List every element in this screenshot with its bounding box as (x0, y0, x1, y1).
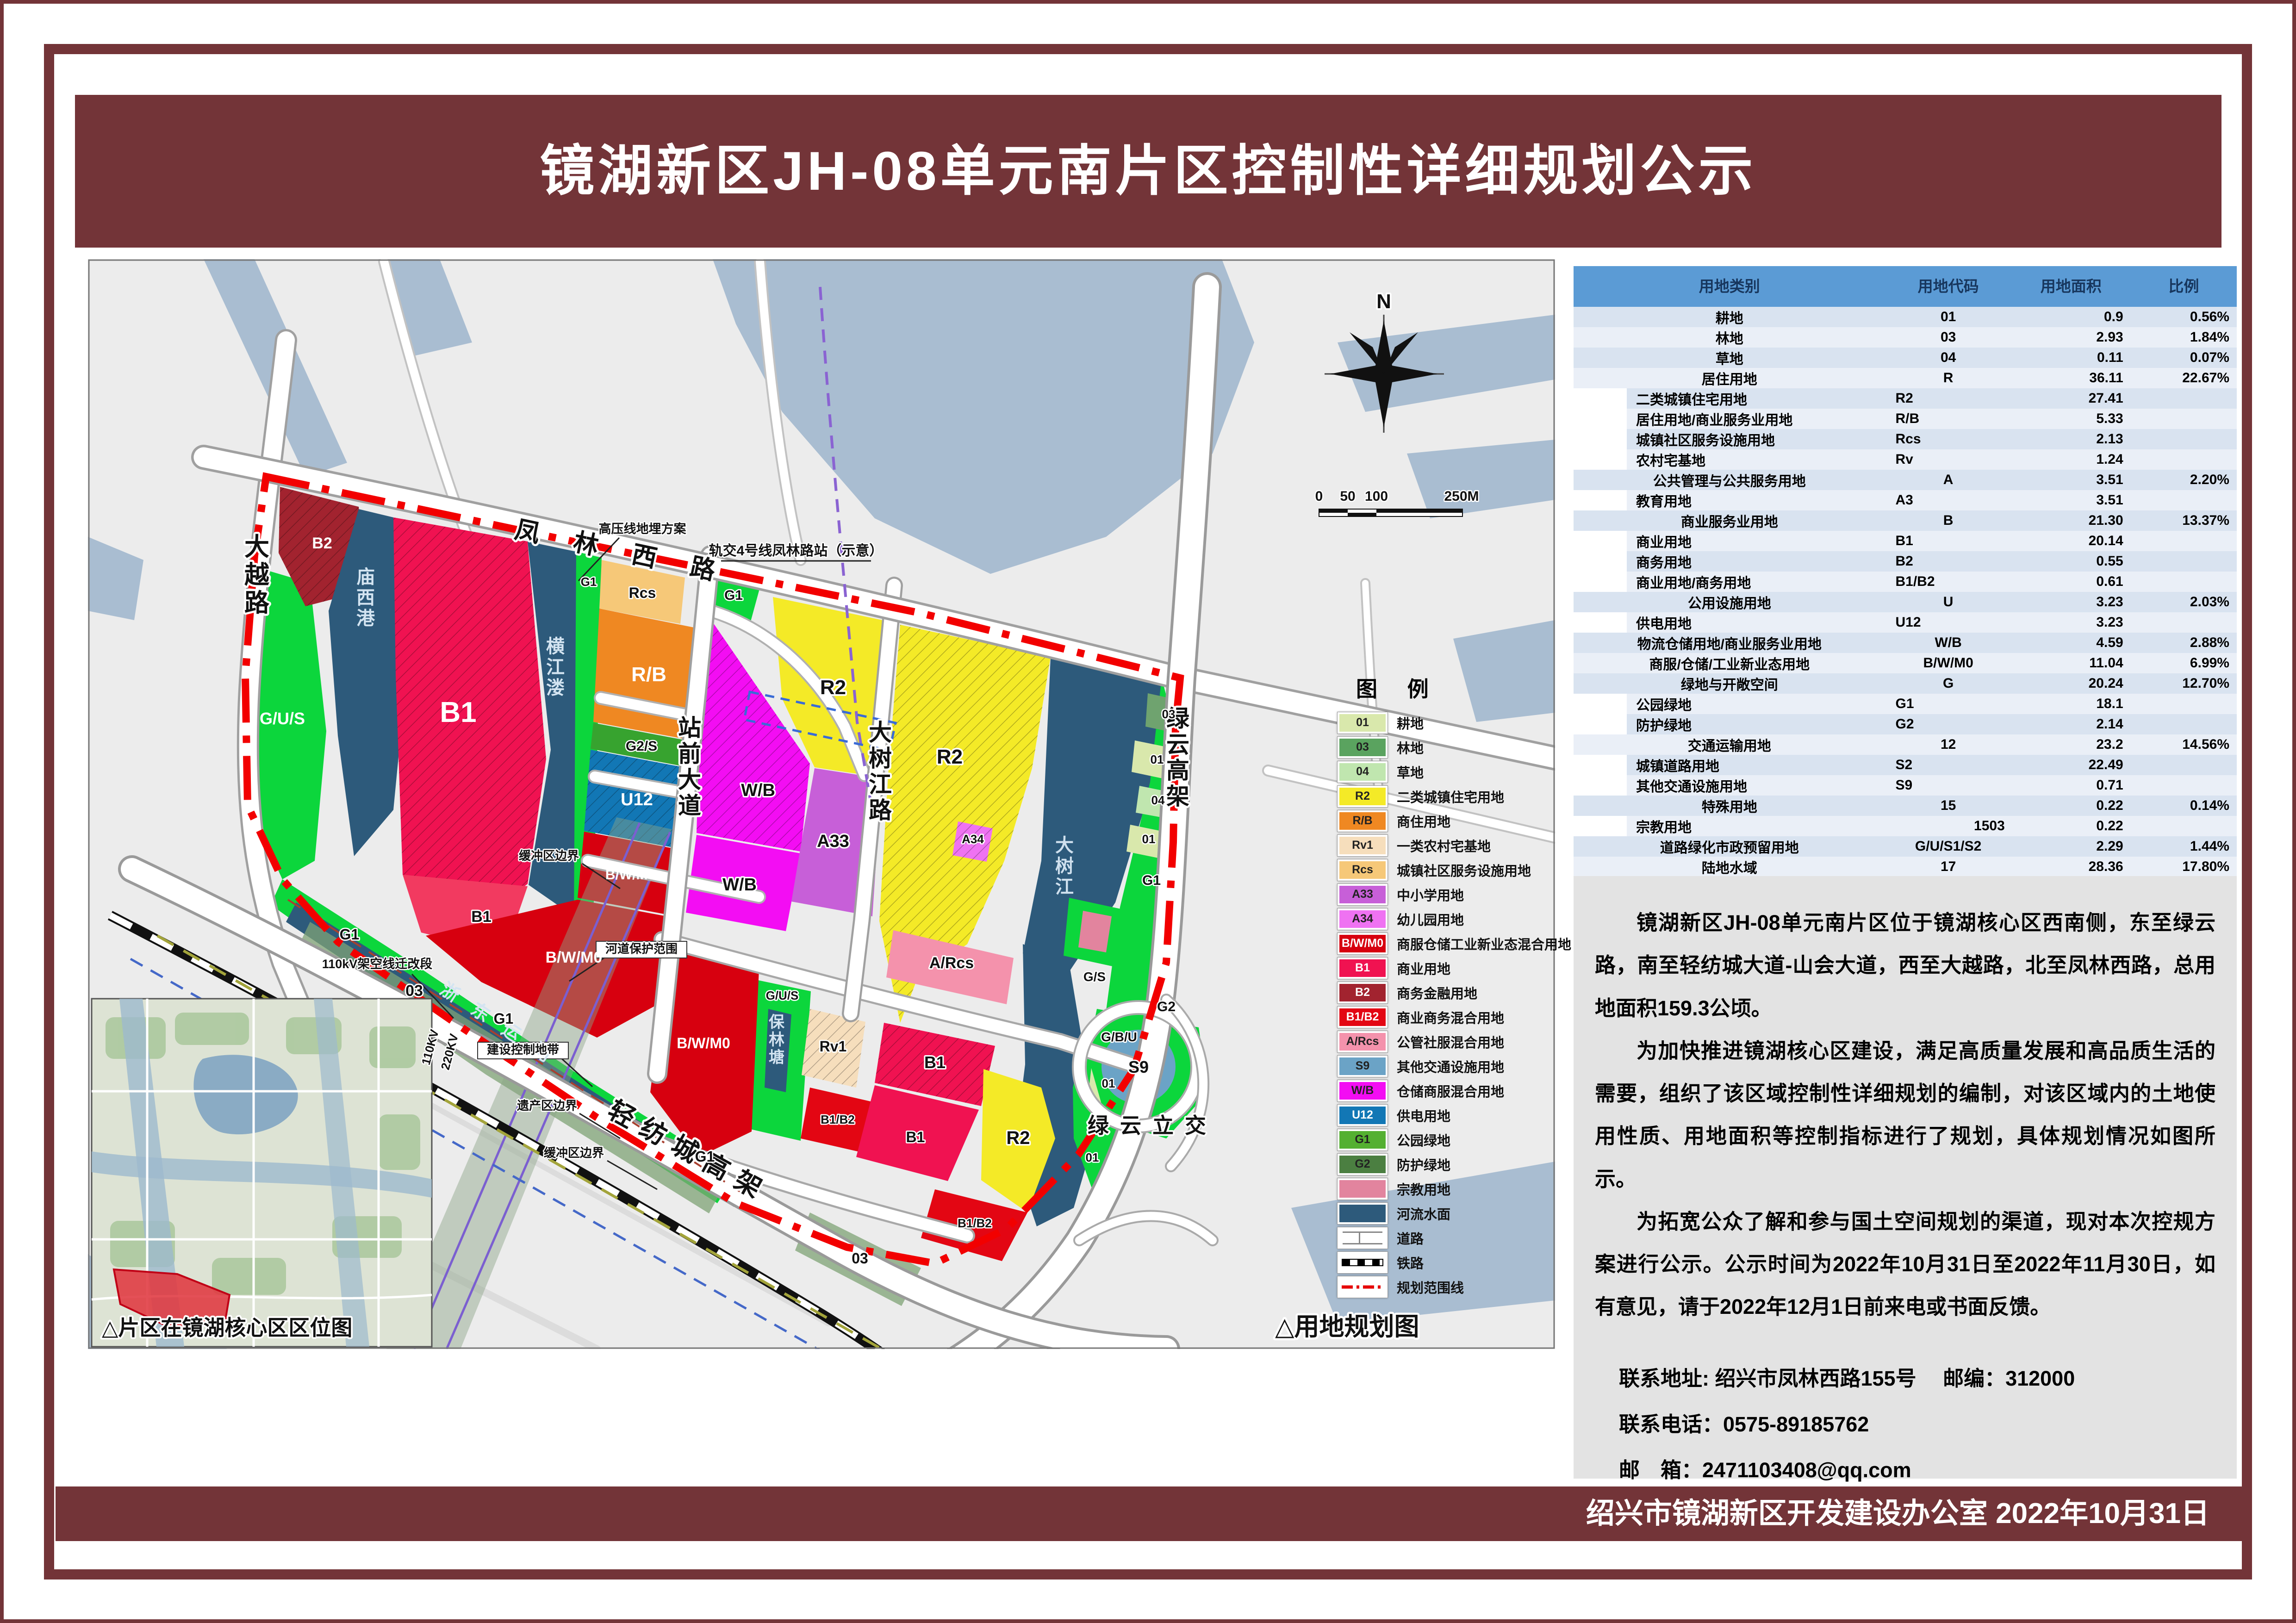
rail-icon (1338, 1252, 1388, 1273)
swatch-icon: B1 (1338, 958, 1388, 979)
table-row: 特殊用地150.220.14% (1574, 796, 2237, 816)
cell-name: 二类城镇住宅用地 (1574, 388, 1885, 409)
swatch-icon: A/Rcs (1338, 1031, 1388, 1052)
cell-name: 供电用地 (1574, 612, 1885, 633)
map-label: W/B (741, 781, 775, 800)
landuse-table: 用地类别 用地代码 用地面积 比例 耕地010.90.56%林地032.931.… (1574, 266, 2237, 897)
table-row: 林地032.931.84% (1574, 327, 2237, 348)
cell-code: 17 (1885, 857, 2011, 877)
map-label: △用地规划图 (1275, 1313, 1419, 1341)
cell-area: 0.71 (2011, 775, 2131, 796)
cell-code: R/B (1885, 409, 2011, 429)
legend-label: 幼儿园用地 (1397, 909, 1464, 929)
landuse-map: 大越路凤 林 西 路站前大道大树江路绿云高架轻纺城高架绿云立交庙西港横江溇保林塘… (88, 259, 1555, 1349)
map-label: 大树江路 (869, 720, 892, 823)
table-row: 商业用地B120.14 (1574, 531, 2237, 551)
legend-items: 01耕地03林地04草地R2二类城镇住宅用地R/B商住用地Rv1一类农村宅基地R… (1338, 710, 1560, 1299)
map-label: U12 (621, 790, 653, 809)
road-icon (1338, 1227, 1388, 1249)
swatch-icon: 03 (1338, 737, 1388, 758)
table-row: 宗教用地15030.22 (1574, 816, 2237, 836)
map-label: Rcs (629, 585, 656, 601)
legend-item: G2防护绿地 (1338, 1152, 1560, 1176)
swatch-icon: R2 (1338, 786, 1388, 807)
cell-area: 20.14 (2011, 531, 2131, 551)
cell-name: 公共管理与公共服务用地 (1574, 470, 1885, 490)
cell-pct: 0.14% (2131, 796, 2237, 816)
table-row: 城镇社区服务设施用地Rcs2.13 (1574, 429, 2237, 449)
cell-pct: 22.67% (2131, 368, 2237, 388)
cell-area: 2.29 (2011, 836, 2131, 857)
swatch-icon: Rcs (1338, 859, 1388, 881)
map-label: R/B (631, 663, 666, 686)
map-label: N (1376, 290, 1391, 313)
cell-area: 27.41 (2011, 388, 2131, 409)
legend-item: 道路 (1338, 1225, 1560, 1250)
legend-label: 仓储商服混合用地 (1397, 1081, 1504, 1101)
legend-item: 04草地 (1338, 759, 1560, 784)
legend-code: B/W/M0 (1342, 937, 1383, 950)
map-label: 保林塘 (769, 1014, 785, 1066)
legend-code: A33 (1352, 888, 1373, 901)
cell-area: 36.11 (2011, 368, 2131, 388)
swatch-icon: G1 (1338, 1129, 1388, 1150)
legend-label: 其他交通设施用地 (1397, 1057, 1504, 1076)
legend-item: B2商务金融用地 (1338, 980, 1560, 1005)
legend-item: B1商业用地 (1338, 956, 1560, 980)
cell-pct (2131, 490, 2237, 510)
map-label: R2 (937, 746, 963, 768)
map-label: 50 (1340, 489, 1355, 504)
contact-block: 联系地址: 绍兴市凤林西路155号 邮编：312000 联系电话：0575-89… (1595, 1356, 2215, 1493)
map-label: 轨交4号线凤林路站（示意） (709, 543, 884, 559)
swatch-icon: 04 (1338, 761, 1388, 783)
legend-label: 道路 (1397, 1228, 1424, 1248)
map-label: 110kV架空线迁改段 (322, 957, 433, 971)
cell-pct (2131, 449, 2237, 470)
legend-item: A33中小学用地 (1338, 882, 1560, 907)
cell-area: 0.11 (2011, 348, 2131, 368)
cell-name: 教育用地 (1574, 490, 1885, 510)
legend-label: 供电用地 (1397, 1106, 1450, 1125)
table-row: 其他交通设施用地S90.71 (1574, 775, 2237, 796)
map-label: G1 (340, 926, 360, 943)
table-row: 商业服务业用地B21.3013.37% (1574, 510, 2237, 531)
table-row: 交通运输用地1223.214.56% (1574, 734, 2237, 755)
cell-name: 农村宅基地 (1574, 449, 1885, 470)
header-landuse-category: 用地类别 (1574, 266, 1885, 307)
legend-label: 商业商务混合用地 (1397, 1007, 1504, 1027)
legend-label: 一类农村宅基地 (1397, 836, 1491, 855)
legend-item: 规划范围线 (1338, 1275, 1560, 1299)
locator-map (92, 999, 432, 1347)
cell-code: 03 (1885, 327, 2011, 348)
cell-pct: 2.03% (2131, 592, 2237, 612)
table-row: 居住用地/商业服务业用地R/B5.33 (1574, 409, 2237, 429)
legend-item: 01耕地 (1338, 710, 1560, 735)
plan-notice-poster: 镜湖新区JH-08单元南片区控制性详细规划公示 (0, 0, 2296, 1623)
map-label: B1 (471, 908, 491, 926)
legend-label: 宗教用地 (1397, 1179, 1450, 1199)
table-row: 公共管理与公共服务用地A3.512.20% (1574, 470, 2237, 490)
cell-code: G2 (1885, 714, 2011, 734)
header-landuse-ratio: 比例 (2131, 266, 2237, 307)
cell-name: 陆地水域 (1574, 857, 1885, 877)
legend-item: R2二类城镇住宅用地 (1338, 784, 1560, 808)
map-label: 绿云立交 (1088, 1113, 1217, 1138)
header-landuse-area: 用地面积 (2011, 266, 2131, 307)
cell-area: 3.51 (2011, 490, 2131, 510)
cell-pct: 13.37% (2131, 510, 2237, 531)
map-label: 03 (1162, 707, 1176, 721)
table-row: 耕地010.90.56% (1574, 307, 2237, 327)
map-label: Rv1 (820, 1038, 847, 1055)
map-label: 大越路 (244, 533, 270, 617)
cell-pct (2131, 755, 2237, 775)
map-label: 横江溇 (546, 636, 565, 698)
cell-name: 城镇社区服务设施用地 (1574, 429, 1885, 449)
cell-name: 绿地与开敞空间 (1574, 673, 1885, 694)
cell-name: 特殊用地 (1574, 796, 1885, 816)
contact-email: 邮 箱：2471103408@qq.com (1619, 1447, 2215, 1493)
legend-label: 中小学用地 (1397, 885, 1464, 904)
cell-area: 0.22 (2011, 796, 2131, 816)
cell-name: 商务用地 (1574, 551, 1885, 572)
legend-item: Rcs城镇社区服务设施用地 (1338, 858, 1560, 882)
cell-name: 商服/仓储/工业新业态用地 (1574, 653, 1885, 673)
cell-name: 居住用地 (1574, 368, 1885, 388)
table-row: 商服/仓储/工业新业态用地B/W/M011.046.99% (1574, 653, 2237, 673)
cell-code: B/W/M0 (1885, 653, 2011, 673)
legend-code: B2 (1355, 986, 1370, 999)
cell-pct (2131, 531, 2237, 551)
map-label: G2/S (626, 739, 657, 754)
cell-code: S2 (1885, 755, 2011, 775)
cell-name: 商业用地 (1574, 531, 1885, 551)
cell-code: G (1885, 673, 2011, 694)
cell-name: 草地 (1574, 348, 1885, 368)
cell-code: Rcs (1885, 429, 2011, 449)
map-label: B/W/M0 (677, 1035, 730, 1051)
map-label: 缓冲区边界 (519, 849, 579, 863)
table-row: 商务用地B20.55 (1574, 551, 2237, 572)
legend-code: Rv1 (1352, 839, 1373, 852)
cell-code: Rv (1885, 449, 2011, 470)
cell-pct: 1.84% (2131, 327, 2237, 348)
cell-pct: 12.70% (2131, 673, 2237, 694)
cell-name: 防护绿地 (1574, 714, 1885, 734)
cell-area: 4.59 (2011, 633, 2131, 653)
map-label: 01 (1151, 752, 1164, 766)
legend-item: W/B仓储商服混合用地 (1338, 1078, 1560, 1103)
cell-area: 0.22 (2011, 816, 2131, 836)
map-label: S9 (1128, 1057, 1149, 1076)
cell-area: 3.23 (2011, 612, 2131, 633)
legend-item: G1公园绿地 (1338, 1127, 1560, 1152)
cell-name: 公园绿地 (1574, 694, 1885, 714)
swatch-icon (1338, 1178, 1388, 1200)
swatch-icon: B1/B2 (1338, 1007, 1388, 1028)
cell-code: R (1885, 368, 2011, 388)
legend-label: 商业用地 (1397, 958, 1450, 978)
cell-area: 18.1 (2011, 694, 2131, 714)
table-row: 公园绿地G118.1 (1574, 694, 2237, 714)
legend-label: 规划范围线 (1397, 1277, 1464, 1297)
legend-label: 商服仓储工业新业态混合用地 (1397, 934, 1571, 953)
cell-code: B1/B2 (1885, 572, 2011, 592)
swatch-icon: S9 (1338, 1056, 1388, 1077)
cell-name: 林地 (1574, 327, 1885, 348)
cell-area: 0.55 (2011, 551, 2131, 572)
map-label: G2 (1157, 999, 1176, 1014)
cell-area: 0.61 (2011, 572, 2131, 592)
table-row: 农村宅基地Rv1.24 (1574, 449, 2237, 470)
cell-pct: 0.07% (2131, 348, 2237, 368)
cell-code: B2 (1885, 551, 2011, 572)
legend-code: U12 (1352, 1108, 1373, 1122)
map-label: B2 (312, 535, 332, 552)
legend-label: 铁路 (1397, 1253, 1424, 1272)
map-label: 河道保护范围 (605, 942, 678, 956)
map-label: 遗产区边界 (517, 1099, 577, 1113)
cell-name: 商业服务业用地 (1574, 510, 1885, 531)
swatch-icon: B2 (1338, 982, 1388, 1003)
cell-area: 20.24 (2011, 673, 2131, 694)
cell-area: 1.24 (2011, 449, 2131, 470)
map-label: G1 (1142, 873, 1161, 888)
cell-pct: 2.88% (2131, 633, 2237, 653)
table-row: 教育用地A33.51 (1574, 490, 2237, 510)
page-title: 镜湖新区JH-08单元南片区控制性详细规划公示 (75, 95, 2221, 248)
legend-item: A/Rcs公管社服混合用地 (1338, 1029, 1560, 1054)
swatch-icon: G2 (1338, 1154, 1388, 1175)
map-label: A34 (962, 832, 984, 846)
cell-name: 道路绿化市政预留用地 (1574, 836, 1885, 857)
table-row: 城镇道路用地S222.49 (1574, 755, 2237, 775)
cell-name: 耕地 (1574, 307, 1885, 327)
legend-code: G1 (1355, 1133, 1370, 1146)
cell-pct (2131, 388, 2237, 409)
legend-item: 河流水面 (1338, 1201, 1560, 1225)
cell-code: 15 (1885, 796, 2011, 816)
notice-paragraph: 为拓宽公众了解和参与国土空间规划的渠道，现对本次控规方案进行公示。公示时间为20… (1595, 1200, 2215, 1329)
legend-item: B1/B2商业商务混合用地 (1338, 1005, 1560, 1029)
cell-code: 04 (1885, 348, 2011, 368)
cell-name: 居住用地/商业服务业用地 (1574, 409, 1885, 429)
map-label: 大树江 (1055, 835, 1074, 897)
cell-code: A (1885, 470, 2011, 490)
cell-pct (2131, 714, 2237, 734)
map-label: 01 (1086, 1150, 1099, 1164)
legend-item: A34幼儿园用地 (1338, 907, 1560, 931)
map-label: G/U/S (260, 709, 305, 728)
legend-label: 城镇社区服务设施用地 (1397, 860, 1531, 880)
legend-code: Rcs (1352, 863, 1373, 877)
legend-label: 草地 (1397, 762, 1424, 782)
legend-item: U12供电用地 (1338, 1103, 1560, 1127)
notice-text-panel: 镜湖新区JH-08单元南片区位于镜湖核心区西南侧，东至绿云路，南至轻纺城大道-山… (1574, 876, 2237, 1479)
cell-pct: 1.44% (2131, 836, 2237, 857)
swatch-icon: B/W/M0 (1338, 933, 1388, 954)
table-row: 商业用地/商务用地B1/B20.61 (1574, 572, 2237, 592)
legend-code: B1/B2 (1346, 1010, 1379, 1024)
legend-label: 耕地 (1397, 713, 1424, 733)
cell-pct (2131, 612, 2237, 633)
map-label: G1 (581, 575, 597, 589)
cell-pct: 0.56% (2131, 307, 2237, 327)
cell-pct (2131, 572, 2237, 592)
cell-name: 城镇道路用地 (1574, 755, 1885, 775)
cell-name: 其他交通设施用地 (1574, 775, 1885, 796)
map-label: R2 (1006, 1128, 1030, 1148)
cell-code: B (1885, 510, 2011, 531)
table-row: 防护绿地G22.14 (1574, 714, 2237, 734)
map-label: G1 (724, 588, 743, 603)
table-row: 二类城镇住宅用地R227.41 (1574, 388, 2237, 409)
swatch-icon: R/B (1338, 810, 1388, 832)
legend-label: 二类城镇住宅用地 (1397, 787, 1504, 806)
swatch-icon: Rv1 (1338, 835, 1388, 856)
legend-code: A/Rcs (1346, 1035, 1379, 1048)
cell-code: 01 (1885, 307, 2011, 327)
legend-code: B1 (1355, 961, 1370, 975)
legend-code: A34 (1352, 912, 1373, 926)
map-label: G/B/U (1101, 1030, 1137, 1044)
swatch-icon: W/B (1338, 1080, 1388, 1101)
cell-code: W/B (1885, 633, 2011, 653)
cell-name: 物流仓储用地/商业服务业用地 (1574, 633, 1885, 653)
legend-label: 商住用地 (1397, 811, 1450, 831)
footer-bar: 绍兴市镜湖新区开发建设办公室 2022年10月31日 (56, 1486, 2242, 1541)
legend-code: G2 (1355, 1157, 1370, 1171)
cell-name: 宗教用地 (1574, 816, 1885, 836)
header-landuse-code: 用地代码 (1885, 266, 2011, 307)
map-label: 缓冲区边界 (544, 1146, 604, 1160)
legend-item: 宗教用地 (1338, 1176, 1560, 1201)
cell-pct (2131, 816, 2237, 836)
map-label: 250M (1444, 489, 1479, 504)
legend-label: 河流水面 (1397, 1204, 1450, 1223)
map-label: A33 (817, 832, 849, 851)
table-row: 绿地与开敞空间G20.2412.70% (1574, 673, 2237, 694)
cell-pct (2131, 551, 2237, 572)
legend-code: R2 (1355, 790, 1370, 803)
legend-label: 商务金融用地 (1397, 983, 1477, 1002)
table-row: 公用设施用地U3.232.03% (1574, 592, 2237, 612)
swatch-icon: A33 (1338, 884, 1388, 905)
map-label: G1 (695, 1148, 715, 1165)
cell-pct (2131, 775, 2237, 796)
cell-area: 21.30 (2011, 510, 2131, 531)
map-label: G/U/S (766, 989, 799, 1002)
swatch-icon: 01 (1338, 712, 1388, 734)
cell-code: R2 (1885, 388, 2011, 409)
legend-label: 林地 (1397, 738, 1424, 757)
cell-area: 3.51 (2011, 470, 2131, 490)
legend-code: S9 (1356, 1059, 1370, 1073)
legend-code: 03 (1356, 740, 1369, 754)
map-label: 100 (1365, 489, 1388, 504)
swatch-icon: U12 (1338, 1105, 1388, 1126)
map-label: G1 (494, 1010, 514, 1027)
legend-item: Rv1一类农村宅基地 (1338, 833, 1560, 858)
cell-pct: 6.99% (2131, 653, 2237, 673)
map-label: 站前大道 (678, 715, 701, 819)
map-label: G/S (1083, 970, 1106, 984)
notice-paragraph: 镜湖新区JH-08单元南片区位于镜湖核心区西南侧，东至绿云路，南至轻纺城大道-山… (1595, 902, 2215, 1030)
map-label: R2 (820, 676, 846, 699)
map-label: 庙西港 (356, 567, 375, 629)
scale-bar (1319, 509, 1462, 516)
map-label: B/W/M0 (605, 867, 655, 883)
map-label: 01 (1142, 832, 1156, 846)
legend-label: 防护绿地 (1397, 1155, 1450, 1174)
map-label: 绿云高架 (1166, 706, 1190, 809)
swatch-icon: A34 (1338, 908, 1388, 930)
cell-area: 28.36 (2011, 857, 2131, 877)
cell-code: A3 (1885, 490, 2011, 510)
cell-area: 5.33 (2011, 409, 2131, 429)
legend-item: S9其他交通设施用地 (1338, 1054, 1560, 1078)
map-label: 建设控制地带 (487, 1043, 559, 1057)
legend-code: 01 (1356, 716, 1369, 729)
map-label: 03 (405, 982, 423, 1000)
map-label: B1/B2 (821, 1113, 855, 1126)
contact-phone: 联系电话：0575-89185762 (1619, 1401, 2215, 1447)
cell-area: 2.13 (2011, 429, 2131, 449)
cell-code: 12 (1885, 734, 2011, 755)
legend-code: W/B (1351, 1084, 1374, 1097)
cell-code: 1503 (1885, 816, 2011, 836)
cell-name: 公用设施用地 (1574, 592, 1885, 612)
map-label: B1 (924, 1053, 946, 1072)
cell-code: U (1885, 592, 2011, 612)
legend-item: 03林地 (1338, 735, 1560, 759)
cell-area: 3.23 (2011, 592, 2131, 612)
table-row: 陆地水域1728.3617.80% (1574, 857, 2237, 877)
map-label: 高压线地埋方案 (599, 522, 687, 536)
cell-area: 2.93 (2011, 327, 2131, 348)
swatch-icon (1338, 1203, 1388, 1224)
map-label: A/Rcs (929, 954, 974, 972)
map-label: B1/B2 (958, 1216, 992, 1230)
map-label: 04 (1151, 793, 1165, 807)
legend: 图 例 01耕地03林地04草地R2二类城镇住宅用地R/B商住用地Rv1一类农村… (1338, 672, 1560, 1299)
cell-pct: 2.20% (2131, 470, 2237, 490)
table-row: 居住用地R36.1122.67% (1574, 368, 2237, 388)
boundary-icon (1338, 1276, 1388, 1298)
table-row: 供电用地U123.23 (1574, 612, 2237, 633)
cell-area: 11.04 (2011, 653, 2131, 673)
table-row: 物流仓储用地/商业服务业用地W/B4.592.88% (1574, 633, 2237, 653)
cell-code: U12 (1885, 612, 2011, 633)
map-label: B/W/M0 (546, 949, 603, 966)
cell-area: 22.49 (2011, 755, 2131, 775)
legend-label: 公管社服混合用地 (1397, 1032, 1504, 1051)
table-row: 道路绿化市政预留用地G/U/S1/S22.291.44% (1574, 836, 2237, 857)
cell-pct: 17.80% (2131, 857, 2237, 877)
map-label: B1 (440, 696, 476, 728)
cell-pct (2131, 694, 2237, 714)
map-label: 03 (852, 1250, 868, 1267)
map-label: B1 (906, 1129, 925, 1145)
cell-area: 2.14 (2011, 714, 2131, 734)
landuse-map-panel: 大越路凤 林 西 路站前大道大树江路绿云高架轻纺城高架绿云立交庙西港横江溇保林塘… (88, 259, 1555, 1349)
cell-name: 交通运输用地 (1574, 734, 1885, 755)
legend-title: 图 例 (1356, 672, 1560, 703)
contact-address: 联系地址: 绍兴市凤林西路155号 邮编：312000 (1619, 1356, 2215, 1401)
cell-pct: 14.56% (2131, 734, 2237, 755)
